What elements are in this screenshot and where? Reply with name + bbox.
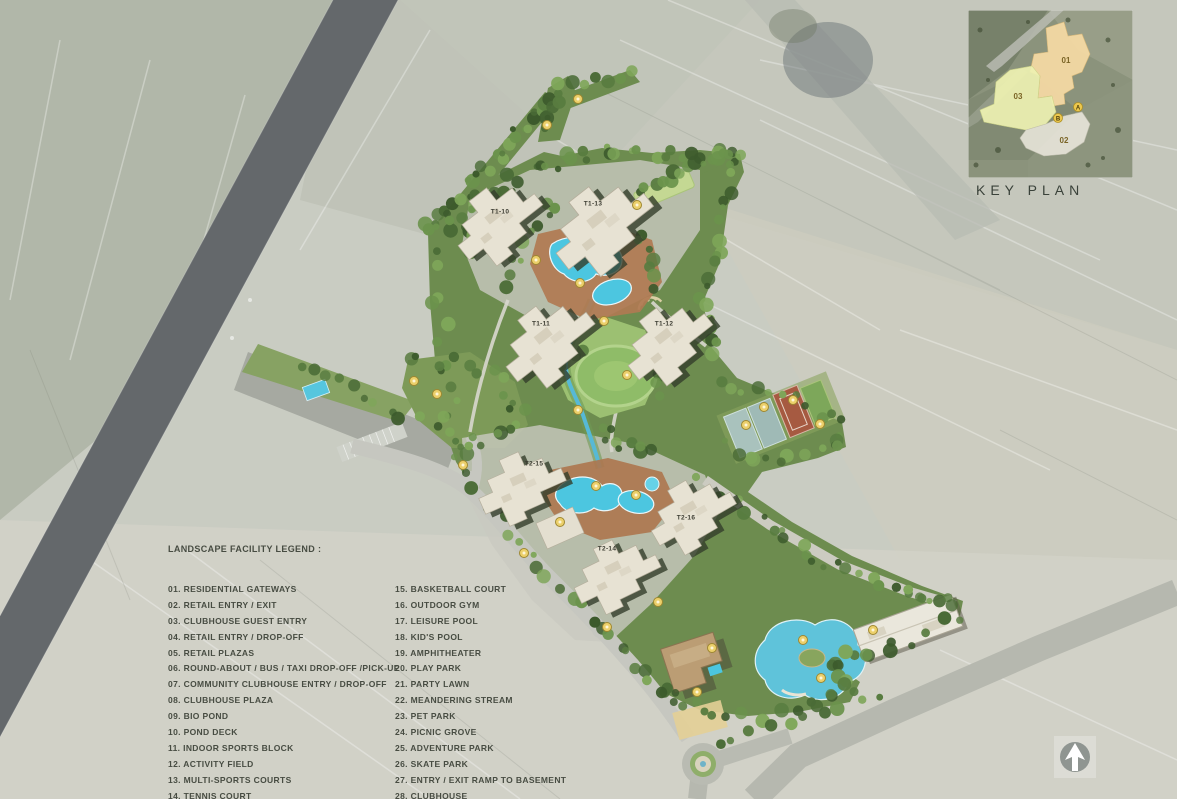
legend-item: 17. LEISURE POOL	[395, 613, 566, 629]
facility-marker	[632, 491, 641, 500]
facility-marker	[742, 421, 751, 430]
legend-column-left: 01. RESIDENTIAL GATEWAYS02. RETAIL ENTRY…	[168, 581, 395, 799]
legend-item: 13. MULTI-SPORTS COURTS	[168, 772, 395, 788]
facility-marker	[799, 636, 808, 645]
tower-label: T1-10	[491, 209, 509, 216]
legend-item: 19. AMPHITHEATER	[395, 645, 566, 661]
legend-item: 07. COMMUNITY CLUBHOUSE ENTRY / DROP-OFF	[168, 676, 395, 692]
facility-marker	[576, 279, 585, 288]
key-plan-inset: 01 03 02 A B	[968, 10, 1133, 178]
facility-marker	[693, 688, 702, 697]
legend-item: 26. SKATE PARK	[395, 756, 566, 772]
key-plan-title: KEY PLAN	[976, 182, 1084, 198]
key-plan-point-b-label: B	[1056, 117, 1061, 123]
legend-item: 20. PLAY PARK	[395, 660, 566, 676]
legend-item: 28. CLUBHOUSE	[395, 788, 566, 799]
facility-marker	[654, 598, 663, 607]
legend-item: 25. ADVENTURE PARK	[395, 740, 566, 756]
legend-item: 10. POND DECK	[168, 724, 395, 740]
legend-title: LANDSCAPE FACILITY LEGEND :	[168, 541, 578, 557]
legend-item: 03. CLUBHOUSE GUEST ENTRY	[168, 613, 395, 629]
key-plan-zone-03-label: 03	[1014, 92, 1023, 101]
roundabout	[682, 743, 724, 785]
facility-marker	[817, 674, 826, 683]
tower-label: T1-11	[532, 321, 550, 328]
legend-item: 24. PICNIC GROVE	[395, 724, 566, 740]
legend-item: 11. INDOOR SPORTS BLOCK	[168, 740, 395, 756]
facility-marker	[789, 396, 798, 405]
key-plan-point-a-label: A	[1076, 106, 1081, 112]
facility-marker	[574, 95, 583, 104]
kids-pool	[645, 477, 659, 491]
tower-label: T1-12	[655, 321, 673, 328]
key-plan-zone-02-label: 02	[1060, 136, 1069, 145]
legend-item: 06. ROUND-ABOUT / BUS / TAXI DROP-OFF /P…	[168, 660, 395, 676]
facility-marker	[708, 644, 717, 653]
tower-label: T2-14	[598, 546, 616, 553]
facility-marker	[592, 482, 601, 491]
facility-marker	[410, 377, 419, 386]
facility-marker	[603, 623, 612, 632]
legend-item: 09. BIO POND	[168, 708, 395, 724]
facility-marker	[623, 371, 632, 380]
legend-item: 08. CLUBHOUSE PLAZA	[168, 692, 395, 708]
legend-item: 21. PARTY LAWN	[395, 676, 566, 692]
key-plan-zone-01-label: 01	[1062, 56, 1071, 65]
legend-item: 14. TENNIS COURT	[168, 788, 395, 799]
tower-label: T2-16	[677, 515, 695, 522]
facility-marker	[543, 121, 552, 130]
facility-marker	[760, 403, 769, 412]
facility-marker	[459, 461, 468, 470]
legend-item: 04. RETAIL ENTRY / DROP-OFF	[168, 629, 395, 645]
pond-island	[799, 649, 825, 667]
site-plan-canvas: T1-10T1-13T1-11T1-12T2-15T2-16T2-14 LAND…	[0, 0, 1177, 799]
tower-label: T1-13	[584, 201, 602, 208]
tower-label: T2-15	[525, 461, 543, 468]
legend-column-right: 15. BASKETBALL COURT16. OUTDOOR GYM17. L…	[395, 581, 566, 799]
legend-item: 01. RESIDENTIAL GATEWAYS	[168, 581, 395, 597]
legend-item: 22. MEANDERING STREAM	[395, 692, 566, 708]
legend-item: 23. PET PARK	[395, 708, 566, 724]
facility-marker	[433, 390, 442, 399]
legend-item: 18. KID'S POOL	[395, 629, 566, 645]
facility-marker	[574, 406, 583, 415]
legend-item: 16. OUTDOOR GYM	[395, 597, 566, 613]
facility-marker	[556, 518, 565, 527]
facility-marker	[532, 256, 541, 265]
legend-panel: LANDSCAPE FACILITY LEGEND : 01. RESIDENT…	[168, 541, 578, 799]
legend-item: 05. RETAIL PLAZAS	[168, 645, 395, 661]
key-plan-map: 01 03 02 A B	[968, 10, 1133, 178]
north-arrow-icon	[1052, 734, 1098, 780]
legend-item: 15. BASKETBALL COURT	[395, 581, 566, 597]
legend-item: 02. RETAIL ENTRY / EXIT	[168, 597, 395, 613]
legend-item: 27. ENTRY / EXIT RAMP TO BASEMENT	[395, 772, 566, 788]
facility-marker	[633, 201, 642, 210]
facility-marker	[869, 626, 878, 635]
legend-item: 12. ACTIVITY FIELD	[168, 756, 395, 772]
facility-marker	[816, 420, 825, 429]
facility-marker	[600, 317, 609, 326]
